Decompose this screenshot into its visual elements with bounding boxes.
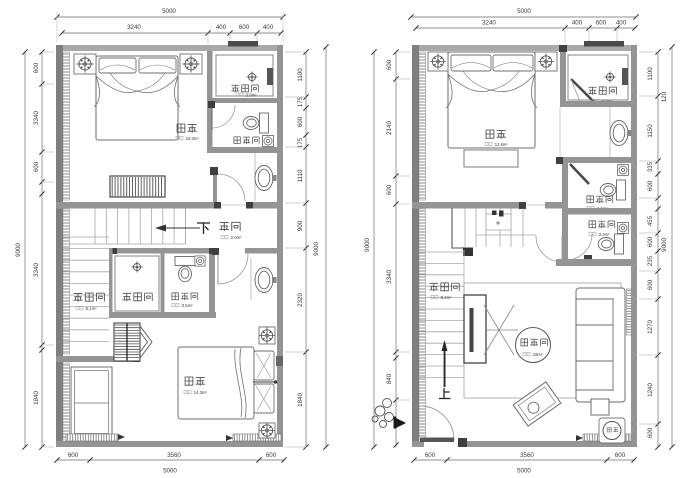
svg-text:9000: 9000	[313, 242, 320, 256]
svg-text:600: 600	[615, 452, 626, 459]
svg-text:9000: 9000	[15, 243, 22, 257]
svg-text:600: 600	[386, 59, 393, 70]
svg-text:455: 455	[647, 215, 654, 226]
svg-text:600: 600	[386, 184, 393, 195]
svg-text:1270: 1270	[647, 320, 654, 334]
svg-text:600: 600	[647, 279, 654, 290]
svg-text:3340: 3340	[33, 111, 40, 125]
svg-text:5000: 5000	[162, 8, 176, 15]
svg-text:1240: 1240	[647, 383, 654, 397]
svg-text:3240: 3240	[482, 20, 496, 27]
svg-text:235: 235	[647, 255, 654, 266]
svg-text:120: 120	[661, 91, 668, 102]
svg-text:1840: 1840	[297, 393, 304, 407]
svg-text:175: 175	[297, 137, 304, 148]
svg-text:600: 600	[266, 452, 277, 459]
svg-text:3340: 3340	[33, 263, 40, 277]
svg-text:3340: 3340	[386, 270, 393, 284]
svg-text:600: 600	[33, 62, 40, 73]
svg-text:5000: 5000	[163, 468, 177, 474]
svg-text:600: 600	[33, 161, 40, 172]
svg-text:2320: 2320	[297, 293, 304, 307]
svg-text:600: 600	[647, 236, 654, 247]
svg-text::12.6m²: :12.6m²	[494, 142, 509, 147]
svg-text:3560: 3560	[520, 452, 534, 459]
svg-text::18.0m²: :18.0m²	[185, 136, 200, 141]
svg-text:600: 600	[68, 452, 79, 459]
svg-text:400: 400	[263, 24, 274, 31]
svg-text::2.0m²: :2.0m²	[230, 235, 242, 240]
svg-text:3240: 3240	[127, 24, 141, 31]
svg-text:400: 400	[616, 20, 627, 27]
svg-text:600: 600	[297, 116, 304, 127]
svg-text:5000: 5000	[517, 8, 531, 15]
svg-text:900: 900	[297, 220, 304, 231]
svg-text::3.5m²: :3.5m²	[181, 303, 193, 308]
svg-text:5000: 5000	[517, 468, 531, 474]
svg-text:600: 600	[647, 180, 654, 191]
svg-text:1100: 1100	[297, 68, 304, 82]
svg-text:400: 400	[216, 24, 227, 31]
svg-text:9000: 9000	[661, 238, 668, 252]
svg-text:1840: 1840	[33, 391, 40, 405]
svg-text:335: 335	[647, 161, 654, 172]
svg-text::3.3m²: :3.3m²	[598, 232, 610, 237]
svg-text::18m²: :18m²	[532, 352, 543, 357]
svg-text:600: 600	[647, 427, 654, 438]
svg-text:175: 175	[297, 96, 304, 107]
svg-text:840: 840	[386, 373, 393, 384]
svg-text:1110: 1110	[297, 169, 304, 182]
svg-text::14.3m²: :14.3m²	[193, 390, 208, 395]
svg-text:400: 400	[572, 20, 583, 27]
svg-text:3560: 3560	[167, 452, 181, 459]
svg-text:1150: 1150	[647, 124, 654, 138]
svg-text:9000: 9000	[364, 238, 371, 252]
svg-text:1100: 1100	[647, 67, 654, 81]
svg-text::6.2m²: :6.2m²	[440, 295, 452, 300]
svg-text:2140: 2140	[386, 121, 393, 135]
svg-text::5.1m²: :5.1m²	[85, 306, 97, 311]
svg-text:600: 600	[425, 452, 436, 459]
svg-text:600: 600	[239, 24, 250, 31]
svg-text::3.5m²: :3.5m²	[245, 93, 257, 98]
svg-text:600: 600	[596, 20, 607, 27]
